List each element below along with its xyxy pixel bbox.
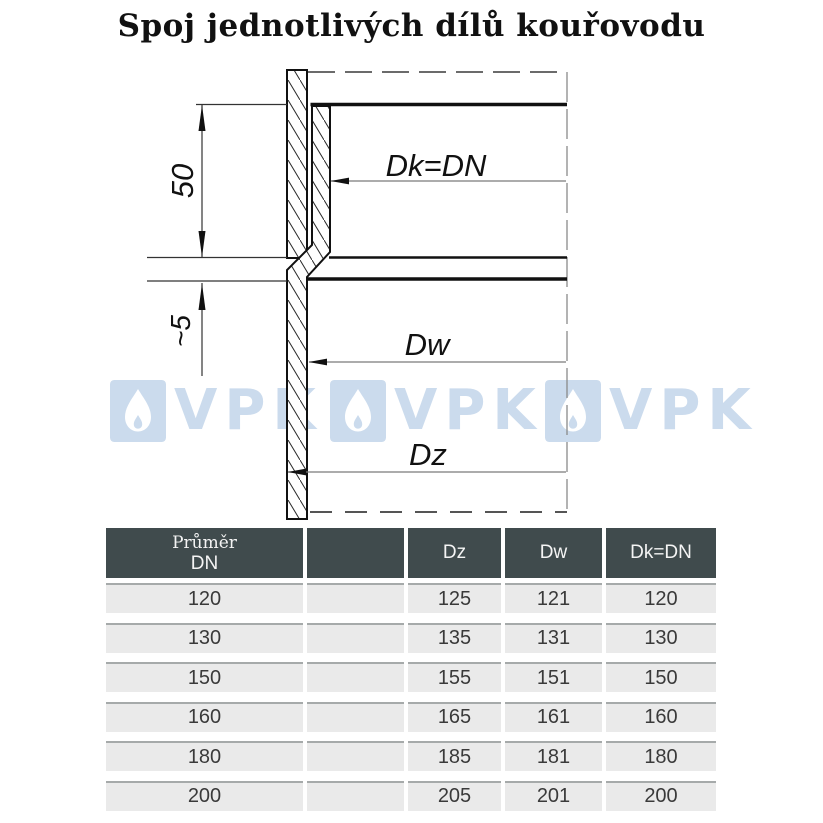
table-cell: 205	[408, 781, 501, 811]
table-cell: 155	[408, 662, 501, 692]
table-cell: 131	[505, 623, 602, 653]
header-dz-label: Dz	[443, 542, 466, 564]
dim50-label: 50	[165, 164, 200, 198]
upper-pipe-wall	[287, 70, 307, 258]
dk-label: Dk=DN	[386, 148, 487, 183]
table-cell: 200	[606, 781, 716, 811]
table-cell: 135	[408, 623, 501, 653]
table-cell: 160	[606, 702, 716, 732]
table-cell	[307, 583, 404, 613]
table-cell	[307, 781, 404, 811]
table-cell: 185	[408, 741, 501, 771]
header-empty	[307, 528, 404, 578]
table-cell	[307, 702, 404, 732]
dw-label: Dw	[405, 327, 452, 362]
table-cell: 150	[606, 662, 716, 692]
header-dw: Dw	[505, 528, 602, 578]
header-diameter-line2: DN	[191, 553, 218, 574]
table-cell: 125	[408, 583, 501, 613]
table-row: 130 135 131 130	[106, 623, 716, 653]
dw-arrow	[309, 359, 328, 366]
dim5-arrow-up	[199, 284, 206, 311]
dz-label: Dz	[409, 437, 447, 472]
table-cell: 130	[606, 623, 716, 653]
table-row: 180 185 181 180	[106, 741, 716, 771]
page-title: Spoj jednotlivých dílů kouřovodu	[0, 8, 823, 44]
dim50-arrow-down	[199, 231, 206, 257]
table-cell: 160	[106, 702, 303, 732]
table-cell: 201	[505, 781, 602, 811]
table-cell: 150	[106, 662, 303, 692]
dimension-table: Průměr DN Dz Dw Dk=DN 120 125 121 120 13…	[106, 528, 716, 811]
table-cell: 165	[408, 702, 501, 732]
table-cell: 121	[505, 583, 602, 613]
header-diameter-line1: Průměr	[172, 533, 237, 553]
table-cell: 130	[106, 623, 303, 653]
table-cell: 120	[606, 583, 716, 613]
dim5-label: ~5	[165, 315, 196, 347]
table-cell: 180	[106, 741, 303, 771]
table-row: 200 205 201 200	[106, 781, 716, 811]
dim50-arrow-up	[199, 105, 206, 131]
table-cell: 120	[106, 583, 303, 613]
flue-joint-diagram: Dk=DN Dw Dz 50 ~5	[0, 0, 823, 525]
table-cell: 200	[106, 781, 303, 811]
table-row: 120 125 121 120	[106, 583, 716, 613]
table-header-row: Průměr DN Dz Dw Dk=DN	[106, 528, 716, 578]
table-cell: 180	[606, 741, 716, 771]
table-cell: 181	[505, 741, 602, 771]
table-cell	[307, 662, 404, 692]
header-dk: Dk=DN	[606, 528, 716, 578]
dk-arrow	[331, 178, 350, 185]
table-cell	[307, 741, 404, 771]
table-row: 150 155 151 150	[106, 662, 716, 692]
table-row: 160 165 161 160	[106, 702, 716, 732]
header-dk-label: Dk=DN	[630, 542, 692, 564]
header-dz: Dz	[408, 528, 501, 578]
header-dw-label: Dw	[540, 542, 567, 564]
table-cell: 151	[505, 662, 602, 692]
header-diameter: Průměr DN	[106, 528, 303, 578]
table-cell: 161	[505, 702, 602, 732]
table-cell	[307, 623, 404, 653]
